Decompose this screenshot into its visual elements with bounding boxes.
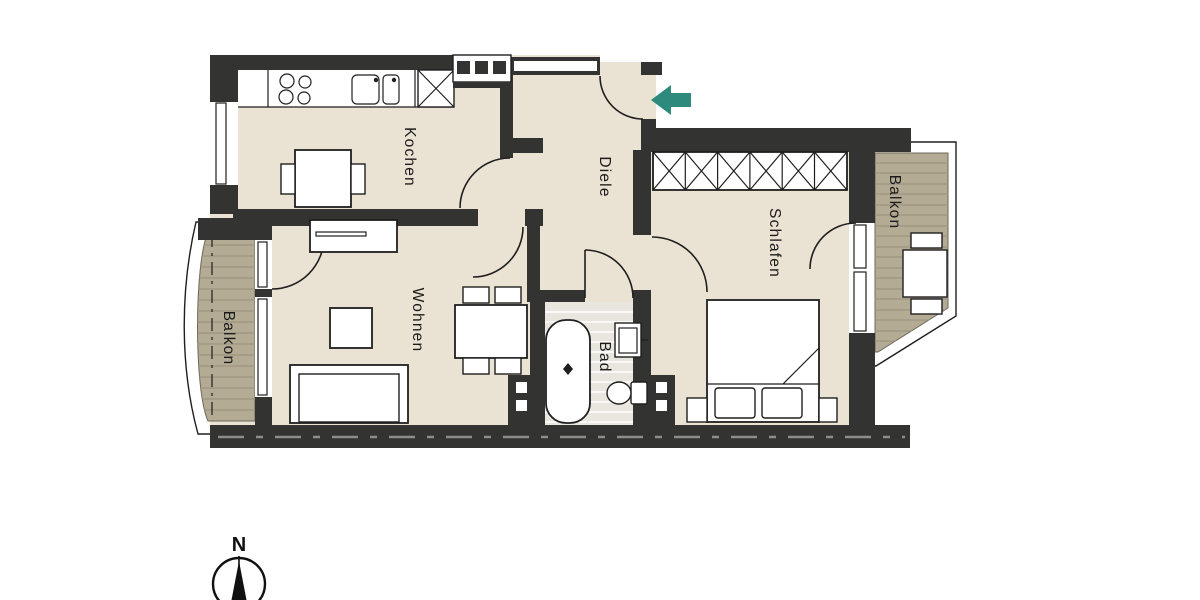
balcony-chair: [911, 233, 942, 248]
shaft-opening: [656, 382, 667, 393]
chair: [495, 358, 521, 374]
balcony-door-leaf: [849, 223, 874, 270]
wall-segment: [849, 333, 875, 425]
coffee-table: [330, 308, 372, 348]
room-label-wohnen: Wohnen: [409, 288, 426, 353]
window: [849, 270, 874, 333]
chair: [495, 287, 521, 303]
compass-needle: [232, 561, 247, 600]
sofa-cushion: [299, 374, 399, 422]
tall-cabinet-icon: [418, 70, 454, 107]
room-label-bad: Bad: [596, 341, 613, 372]
wall-segment: [527, 220, 540, 302]
wall-segment: [255, 397, 272, 428]
window: [210, 102, 238, 185]
shaft-opening: [516, 382, 527, 393]
wall-segment: [849, 152, 875, 223]
wardrobe: [653, 152, 847, 190]
wall-segment: [512, 138, 543, 153]
chair: [281, 164, 295, 194]
balcony-chair: [911, 299, 942, 314]
wall-segment: [641, 62, 662, 75]
wall-segment: [633, 150, 651, 235]
pillow: [762, 388, 802, 418]
room-label-balkon-left: Balkon: [220, 311, 237, 366]
chair: [463, 358, 489, 374]
compass-north-label: N: [232, 534, 246, 556]
shaft-opening: [656, 400, 667, 411]
room-label-balkon-right: Balkon: [886, 175, 903, 230]
compass-north: N: [213, 534, 265, 600]
kitchen-table: [295, 150, 351, 207]
pillow: [715, 388, 755, 418]
room-label-schlafen: Schlafen: [766, 208, 783, 278]
balcony-table: [903, 250, 947, 297]
ventilation-shaft: [453, 55, 513, 88]
entrance-arrow-icon: [651, 85, 691, 115]
toilet: [607, 382, 631, 404]
chair: [463, 287, 489, 303]
nightstand: [819, 398, 837, 422]
dining-table: [455, 305, 527, 358]
floor-plan-svg: Kochen Diele Schlafen Wohnen Bad Balkon …: [0, 0, 1200, 600]
wall-segment: [210, 55, 238, 102]
chair: [351, 164, 365, 194]
nightstand: [687, 398, 707, 422]
shaft-opening: [516, 400, 527, 411]
wall-glazing: [514, 61, 597, 71]
toilet-tank: [631, 382, 647, 404]
wall-segment: [641, 128, 911, 152]
room-label-diele: Diele: [596, 156, 613, 197]
wall-segment: [527, 290, 585, 302]
room-label-kochen: Kochen: [401, 127, 418, 187]
balcony-right: [864, 142, 956, 366]
wall-segment: [198, 218, 240, 240]
floor-plan-page: Kochen Diele Schlafen Wohnen Bad Balkon …: [0, 0, 1200, 600]
wall-segment: [210, 55, 455, 70]
